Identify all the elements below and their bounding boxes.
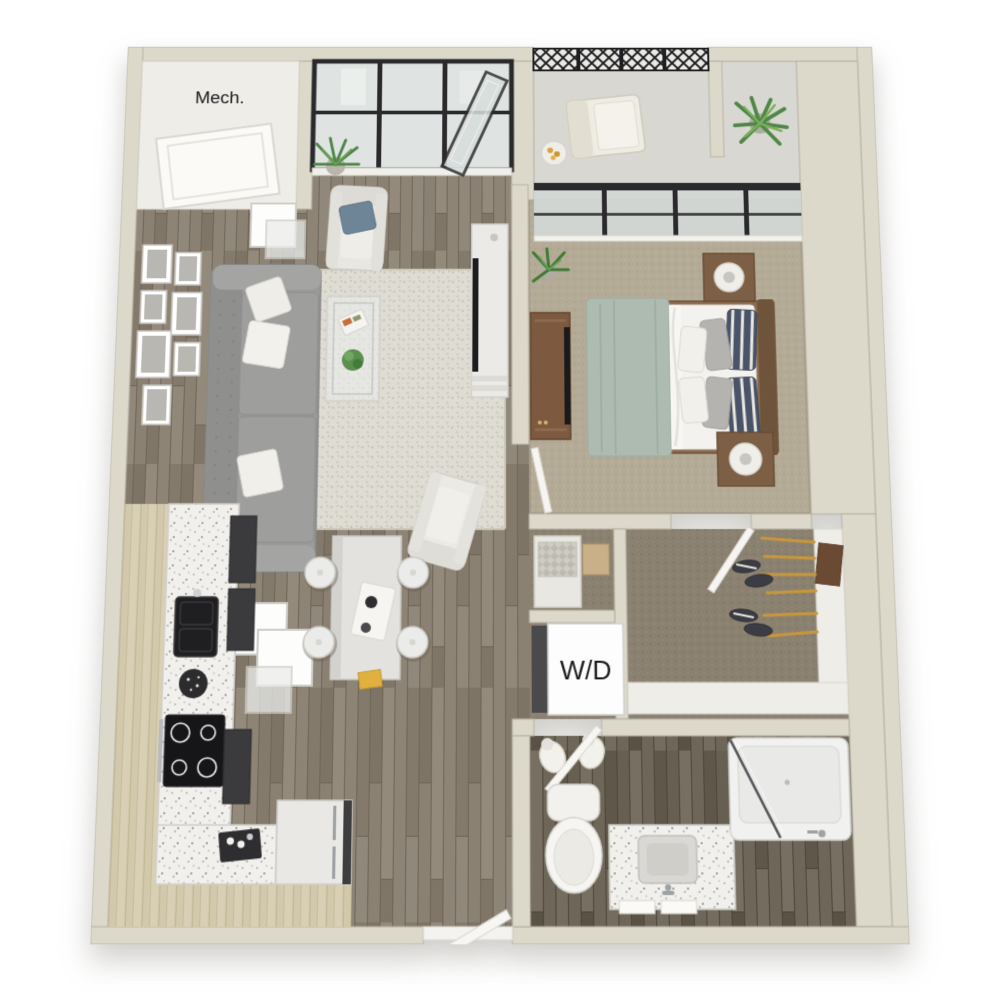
sofa-pillow-2: [242, 320, 291, 368]
mech-label: Mech.: [195, 87, 245, 107]
sofa-pillow-3: [237, 449, 284, 498]
nightstand-top: [703, 253, 755, 301]
hall-opening-floor: [512, 444, 530, 719]
cooktop: [157, 715, 225, 787]
balcony-lounge-chair: [566, 94, 646, 158]
wall-linen-wd-divider: [529, 610, 614, 622]
towel-1: [619, 901, 655, 914]
tv-bedroom: [564, 327, 571, 424]
base-cabinets-bottom: [108, 884, 352, 926]
tv-living: [472, 258, 478, 371]
closet-shelf-bottom: [628, 683, 849, 714]
mech-unit: [156, 124, 279, 210]
bedroom-tv-console: [530, 313, 570, 440]
kitchen-island: [330, 536, 401, 689]
wall-bedroom-bottom-west: [529, 514, 671, 529]
faucet: [662, 891, 675, 895]
wall-top-right: [708, 47, 873, 62]
balcony-fruit-table: [541, 141, 566, 165]
wall-balcony-left-pier: [511, 61, 534, 199]
towel-2: [661, 901, 697, 914]
vanity: [609, 825, 736, 914]
sage-blanket: [586, 298, 671, 456]
floor-plan-canvas: Mech.: [90, 47, 909, 944]
kitchen-sink: [174, 589, 219, 657]
blue-pillow: [339, 201, 377, 235]
wall-bottom-right: [513, 927, 910, 945]
nightstand-bottom: [717, 432, 774, 486]
wall-bathroom-top-west: [512, 719, 534, 736]
refrigerator: [276, 800, 352, 884]
mechanical-closet: Mech.: [137, 61, 300, 209]
closet-box: [815, 543, 843, 586]
bedroom-window-wall: [534, 183, 802, 241]
coffee-table: [325, 296, 380, 401]
wall-bottom-left: [90, 927, 423, 945]
floor-plan-3d: Mech.: [90, 47, 909, 944]
toilet: [545, 784, 602, 892]
wall-living-bedroom: [512, 185, 529, 444]
bathtub-shower: [728, 738, 851, 840]
armchair-top: [326, 185, 388, 271]
storage-box: [583, 544, 610, 574]
wall-balcony-jut: [708, 61, 724, 157]
wall-bathroom-left: [512, 736, 530, 927]
wall-bathroom-top-east: [602, 719, 850, 736]
yellow-towel: [358, 670, 382, 690]
washer-dryer-side: [532, 626, 549, 713]
serving-tray: [218, 828, 262, 862]
tv-stand-living: [471, 224, 508, 397]
floor-plan-screenshot: Mech.: [0, 0, 1000, 1000]
wall-bedroom-bottom-east: [751, 514, 812, 529]
laundry-closet: W/D: [531, 624, 624, 715]
wd-label: W/D: [560, 656, 612, 686]
